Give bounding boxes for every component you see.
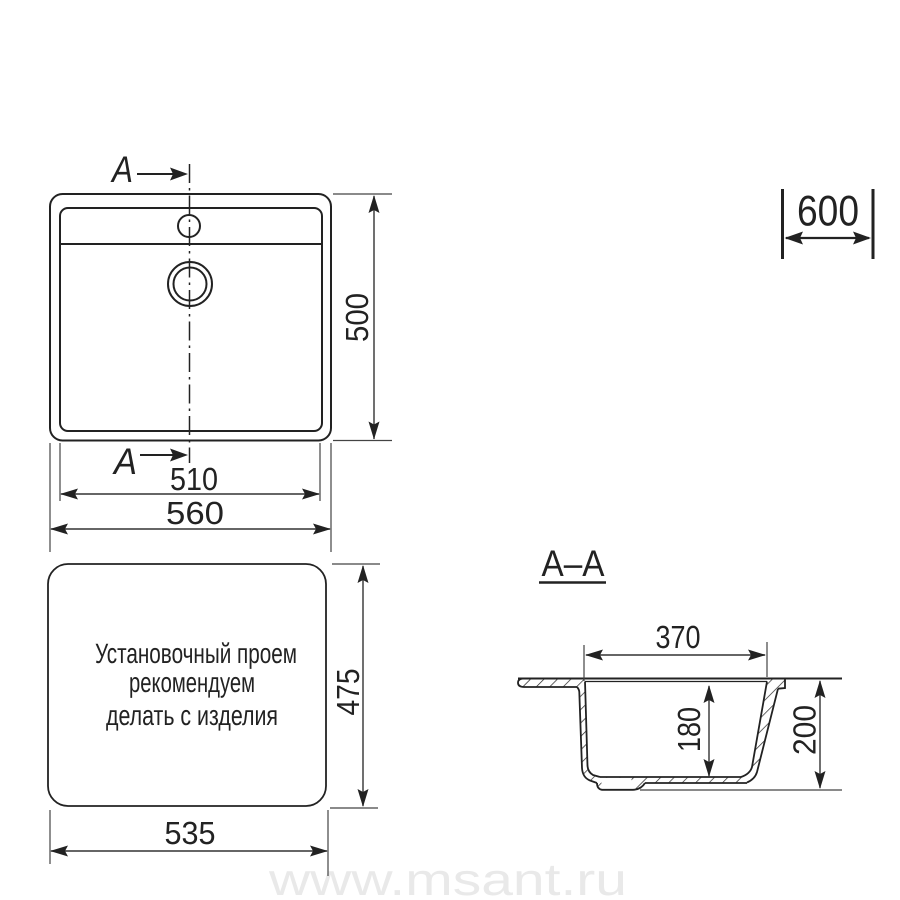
svg-text:www.msant.ru: www.msant.ru	[268, 854, 627, 900]
svg-text:475: 475	[330, 669, 366, 716]
svg-text:A: A	[110, 149, 133, 190]
svg-text:370: 370	[656, 619, 701, 655]
svg-text:Установочный проем: Установочный проем	[95, 638, 297, 669]
svg-text:510: 510	[170, 461, 218, 497]
svg-text:рекомендуем: рекомендуем	[129, 667, 255, 698]
svg-text:560: 560	[166, 495, 224, 531]
svg-text:A: A	[112, 441, 137, 482]
svg-text:делать с изделия: делать с изделия	[106, 700, 278, 731]
svg-text:200: 200	[787, 705, 823, 755]
svg-text:A–A: A–A	[542, 543, 605, 584]
svg-text:535: 535	[165, 815, 216, 851]
svg-text:180: 180	[671, 707, 707, 752]
svg-text:500: 500	[339, 293, 375, 342]
svg-text:600: 600	[797, 188, 859, 236]
